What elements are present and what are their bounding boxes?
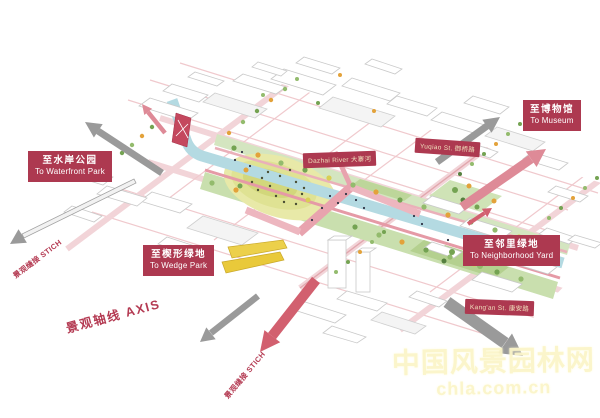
label-to-waterfront-park-cn: 至水岸公园 bbox=[35, 155, 105, 167]
label-to-waterfront-park-en: To Waterfront Park bbox=[35, 167, 105, 177]
site-plan-illustration bbox=[0, 0, 600, 418]
label-to-waterfront-park: 至水岸公园 To Waterfront Park bbox=[28, 151, 112, 182]
label-to-museum-cn: 至博物馆 bbox=[530, 104, 574, 116]
label-to-museum-en: To Museum bbox=[530, 116, 574, 126]
label-to-wedge-park: 至楔形绿地 To Wedge Park bbox=[143, 245, 214, 276]
label-to-neighborhood-yard-en: To Neighborhood Yard bbox=[470, 251, 553, 261]
label-kangan-street: Kang'an St. 康安路 bbox=[465, 299, 535, 316]
label-to-wedge-park-cn: 至楔形绿地 bbox=[150, 249, 207, 261]
label-to-wedge-park-en: To Wedge Park bbox=[150, 261, 207, 271]
label-to-museum: 至博物馆 To Museum bbox=[523, 100, 581, 131]
arrow-stitch-bottom-gray-icon bbox=[200, 296, 258, 342]
arrow-stitch-bottom-pink-icon bbox=[260, 280, 316, 352]
masterplan-diagram: 至水岸公园 To Waterfront Park 至博物馆 To Museum … bbox=[0, 0, 600, 418]
wedge-structures bbox=[222, 240, 287, 273]
label-to-neighborhood-yard-cn: 至邻里绿地 bbox=[470, 239, 553, 251]
label-dazhai-river: Dazhai River 大寨河 bbox=[303, 151, 377, 168]
label-to-neighborhood-yard: 至邻里绿地 To Neighborhood Yard bbox=[463, 235, 560, 266]
